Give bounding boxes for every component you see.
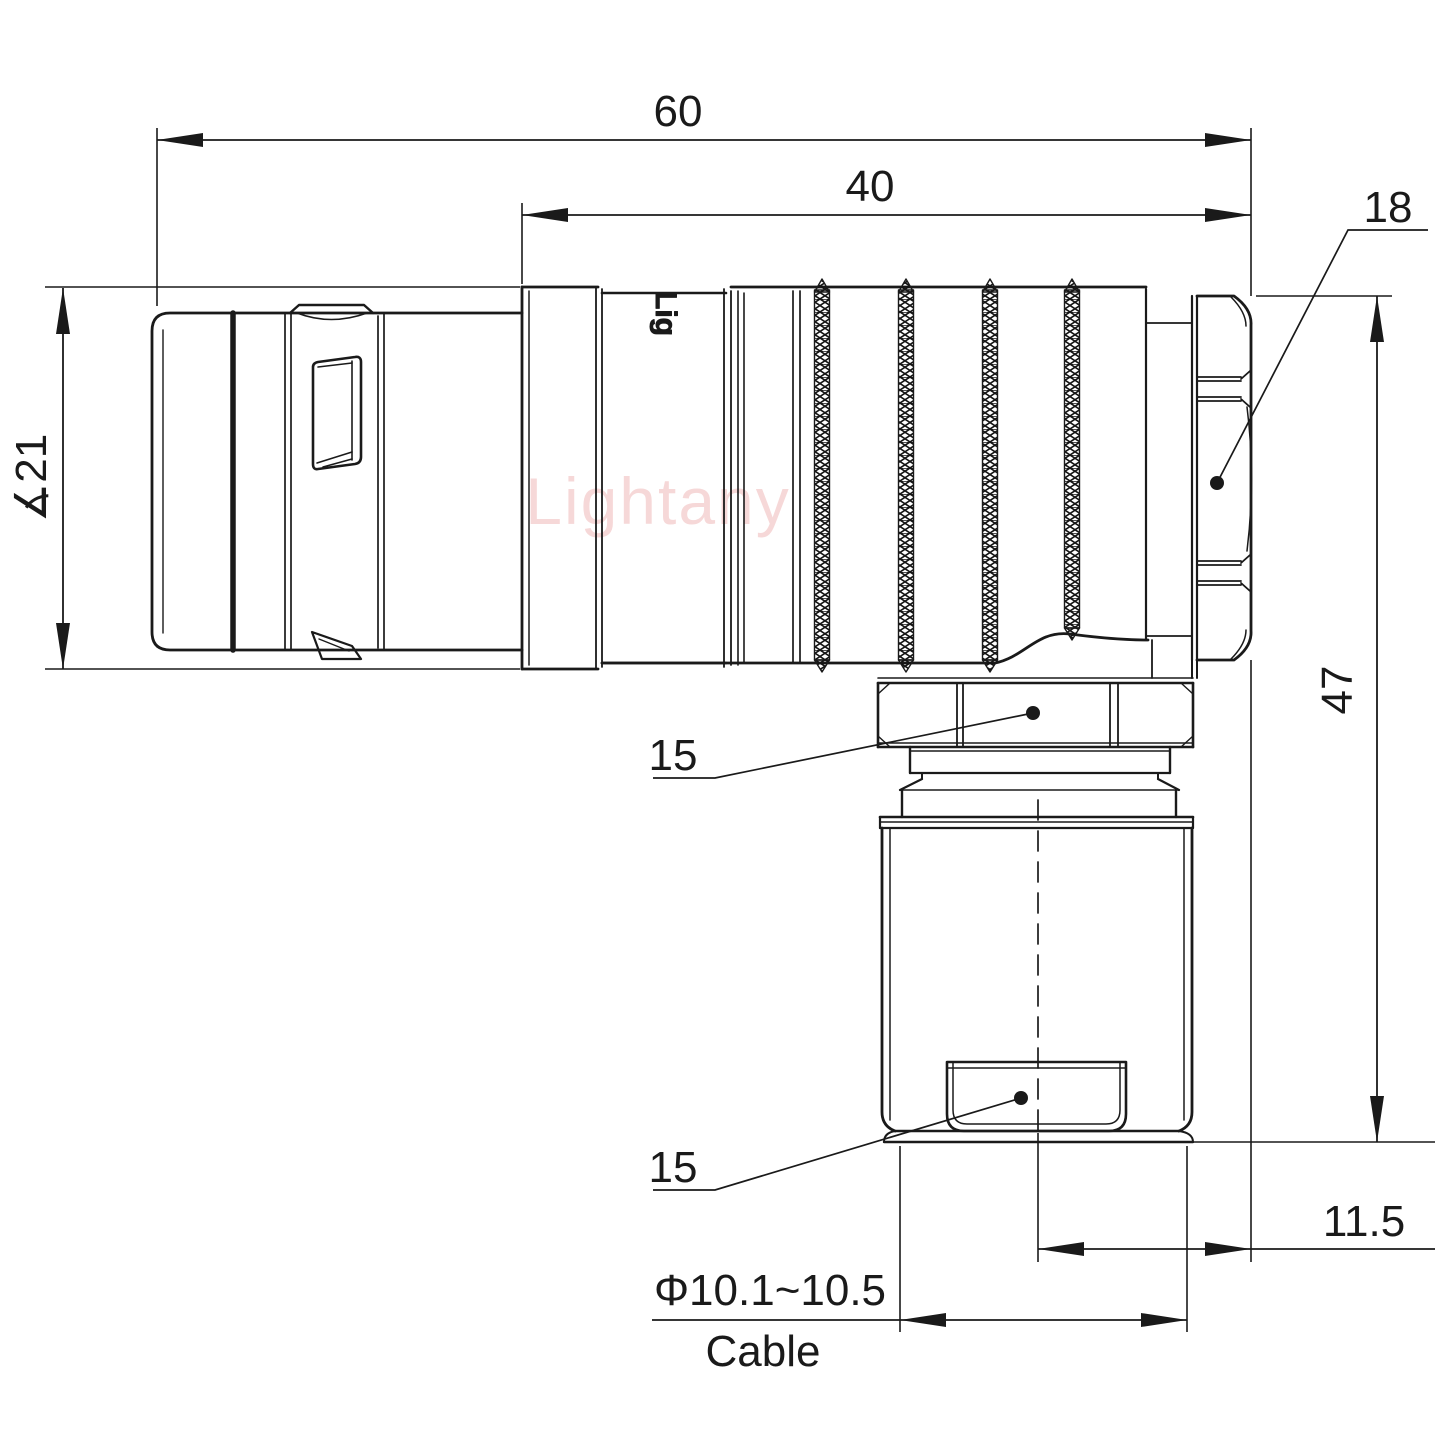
dim-40-label: 40 [846,162,895,211]
dim-cable-range-label: Φ10.1~10.5 [654,1266,886,1315]
vertical-leg [878,678,1193,1142]
dim-47-label: 47 [1313,666,1362,715]
dim-dia21-label: ∡21 [7,434,56,522]
leader-dot-15-upper [1026,706,1040,720]
front-shell [152,305,522,659]
dim-cable-word-label: Cable [706,1327,821,1376]
knurl-bands [815,279,1080,672]
dim-60-label: 60 [654,87,703,136]
dim-18-label: 18 [1364,183,1413,232]
dimension-47: 47 [1193,296,1435,1142]
dim-15-lower-label: 15 [649,1143,698,1192]
shell-logo-text: Lig [649,291,682,336]
sleeve-lip [880,817,1193,828]
dim-15-upper-label: 15 [649,731,698,780]
dimensions: 60 40 18 ∡21 [7,87,1435,1376]
technical-drawing-page: Lightany [0,0,1440,1440]
bottom-tab [312,632,361,659]
dim-11-5-label: 11.5 [1323,1197,1405,1246]
dimension-60: 60 [157,87,1251,306]
watermark-text: Lightany [525,464,791,538]
bayonet-window [313,357,361,469]
dimension-dia21: ∡21 [7,287,520,669]
connector-body: Lig [152,279,1252,1142]
leader-dot-18 [1210,476,1224,490]
connector-technical-drawing: Lightany [0,0,1440,1440]
clamp-window [947,1062,1126,1131]
dimension-18-leader: 18 [1210,183,1428,490]
dimension-cable: Φ10.1~10.5 Cable [652,1146,1187,1376]
dimension-40: 40 [522,162,1251,284]
leader-dot-15-lower [1014,1091,1028,1105]
elbow [1192,660,1197,678]
washer-stack [900,747,1179,817]
